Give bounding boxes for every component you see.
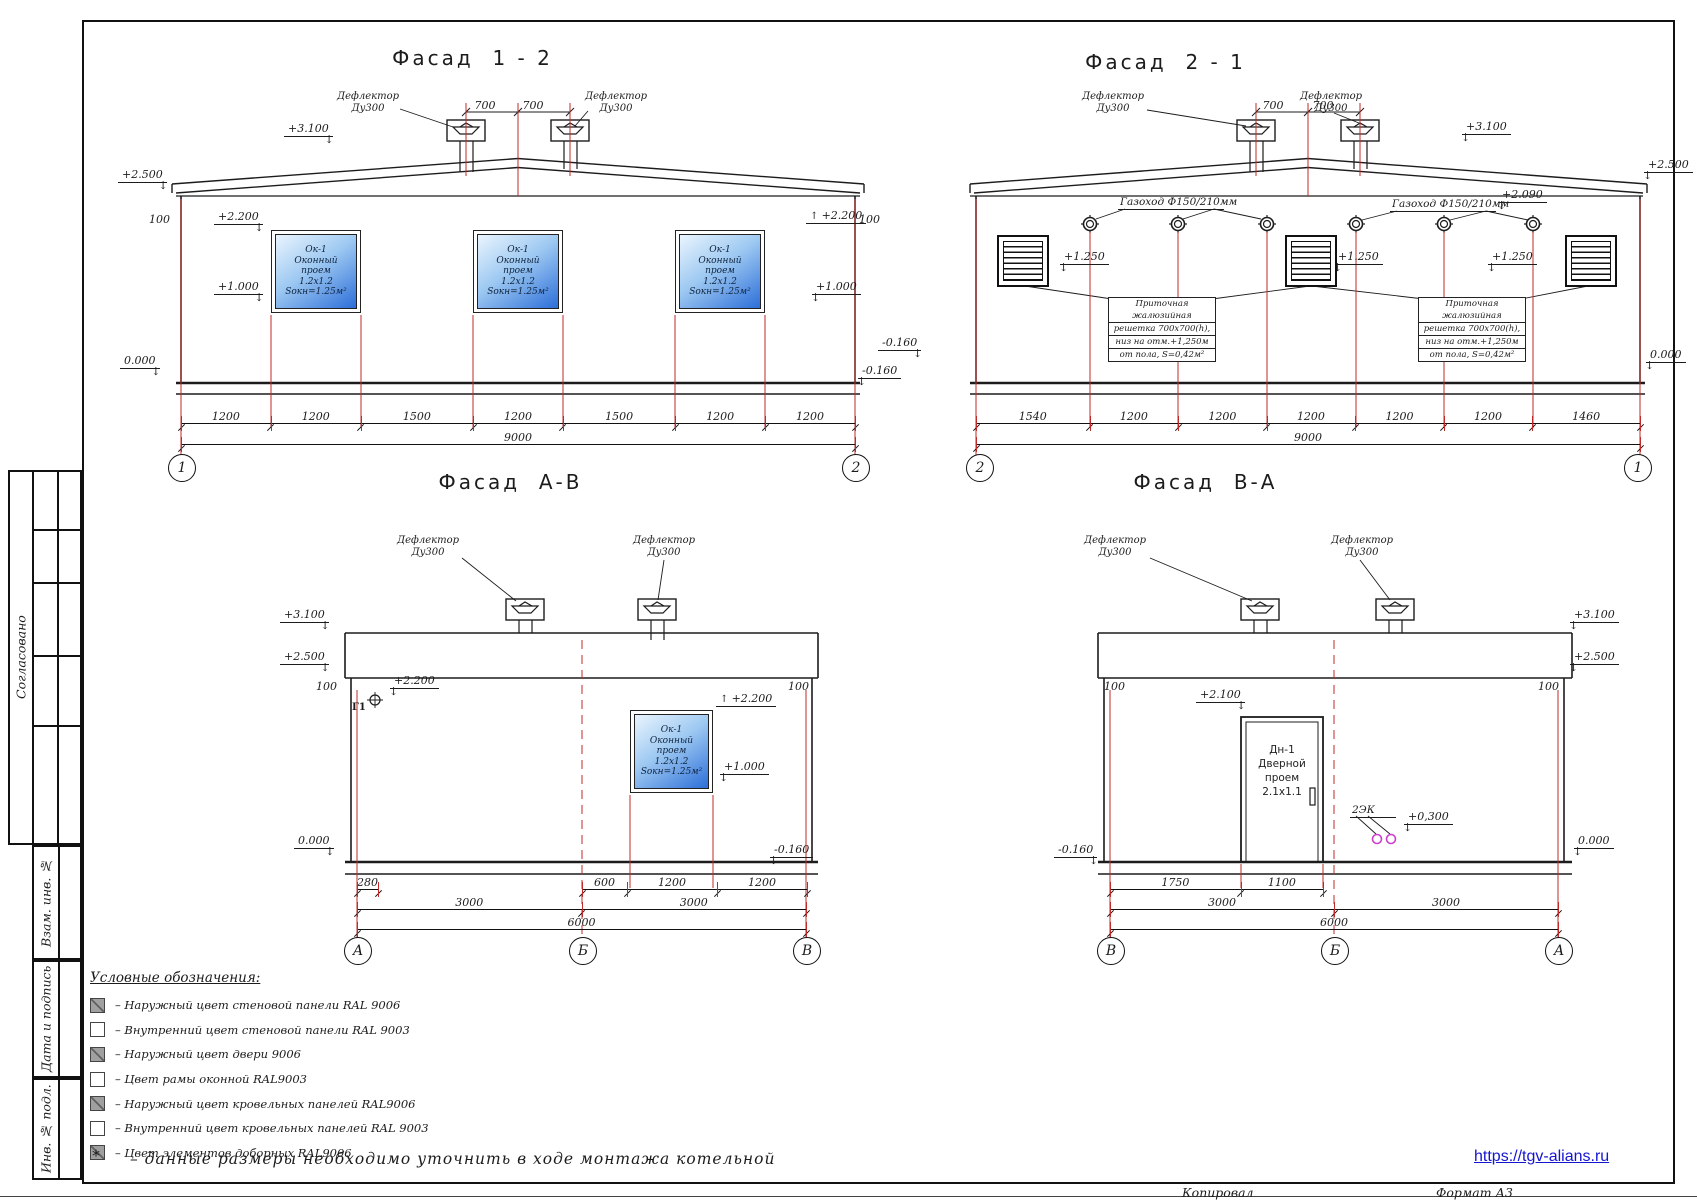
extension-tick xyxy=(806,902,807,917)
legend-label: – Наружный цвет двери 9006 xyxy=(115,1047,301,1061)
dimension-row: 280 xyxy=(357,876,378,890)
elevation-mark: +2.200 xyxy=(214,210,263,225)
door-label: Дверной xyxy=(1258,757,1306,771)
window-label: 1.2х1.2 xyxy=(655,757,689,768)
window-label: 1.2х1.2 xyxy=(299,277,333,288)
dimension-row: 1200120015001200150012001200 xyxy=(181,410,855,424)
extension-tick xyxy=(563,416,564,431)
titleblock-approval-strip: Согласовано xyxy=(8,470,82,845)
elevation-mark: +2.500 xyxy=(1644,158,1693,173)
site-link[interactable]: https://tgv-alians.ru xyxy=(1474,1148,1629,1166)
callout-row: от пола, S=0,42м² xyxy=(1109,348,1215,361)
door-dn1: Дн-1Двернойпроем2.1х1.1 xyxy=(1241,717,1323,862)
extension-tick xyxy=(976,437,977,452)
facade-title-2-1: Фасад 2 - 1 xyxy=(1068,50,1263,74)
extension-tick xyxy=(1090,416,1091,431)
axis-marker: В xyxy=(793,937,821,965)
dimension-label: 3000 xyxy=(1110,896,1334,909)
window-label: Sокн=1.25м² xyxy=(285,287,347,298)
dimension-row: 1540120012001200120012001460 xyxy=(976,410,1640,424)
window-label: Ок-1 xyxy=(709,245,731,256)
elevation-mark: +2.090 xyxy=(1498,188,1547,203)
dimension-row: 30003000 xyxy=(1110,896,1558,910)
legend: Условные обозначения: – Наружный цвет ст… xyxy=(90,970,690,1165)
dimension-row: 6000 xyxy=(1110,916,1558,930)
dimension-line xyxy=(181,423,855,424)
legend-item: – Наружный цвет двери 9006 xyxy=(90,1042,690,1067)
extension-tick xyxy=(271,416,272,431)
deflector-label: Дефлектор Ду300 xyxy=(632,535,696,558)
callout-row: от пола, S=0,42м² xyxy=(1419,348,1525,361)
axis-marker: В xyxy=(1097,937,1125,965)
legend-label: – Наружный цвет кровельных панелей RAL90… xyxy=(115,1097,416,1111)
titleblock-inv-cell: Инв. № подл. xyxy=(32,1078,82,1180)
window-ok1: Ок-1Оконныйпроем1.2х1.2Sокн=1.25м² xyxy=(630,710,713,793)
dimension-label: 6000 xyxy=(1110,916,1558,929)
dimension-label: 1200 xyxy=(473,410,563,423)
extension-tick xyxy=(1558,922,1559,937)
grille-fins xyxy=(1291,241,1331,281)
extension-tick xyxy=(1558,902,1559,917)
titleblock-vzam-label: Взам. инв. № xyxy=(34,847,58,958)
legend-item: – Наружный цвет кровельных панелей RAL90… xyxy=(90,1091,690,1116)
extension-tick xyxy=(1241,882,1242,897)
elevation-mark: -0.160 xyxy=(1054,843,1097,858)
window-label: проем xyxy=(705,266,735,277)
deflector-label: Дефлектор Ду300 xyxy=(1080,91,1146,114)
dimension-label: 1200 xyxy=(1178,410,1267,423)
elevation-mark: +2.200 xyxy=(390,674,439,689)
extension-tick xyxy=(976,416,977,431)
drawing-sheet: Согласовано Взам. инв. № Дата и подпись … xyxy=(0,0,1697,1200)
extension-tick xyxy=(855,437,856,452)
axis-marker: А xyxy=(1545,937,1573,965)
extension-tick xyxy=(855,416,856,431)
elevation-mark: +1.250 xyxy=(1334,250,1383,265)
dimension-label: 1200 xyxy=(675,410,765,423)
elevation-mark: -0.160 xyxy=(770,843,813,858)
elevation-mark: 0.000 xyxy=(120,354,160,369)
gas-duct-label: Газоход Ф150/210мм xyxy=(1390,198,1496,212)
deflector-label: Дефлектор Ду300 xyxy=(584,91,648,114)
callout-row: Приточная жалюзийная xyxy=(1109,298,1215,322)
elevation-mark: +1.250 xyxy=(1060,250,1109,265)
dimension-line xyxy=(357,929,806,930)
window-label: проем xyxy=(657,746,687,757)
elevation-mark: +2.500 xyxy=(118,168,167,183)
dimension-line xyxy=(976,423,1640,424)
dim-700: 700 xyxy=(1308,99,1338,112)
elevation-mark: 0.000 xyxy=(1646,348,1686,363)
extension-tick xyxy=(717,882,718,897)
grille-fins xyxy=(1003,241,1043,281)
deflector-label: Дефлектор Ду300 xyxy=(1083,535,1147,558)
legend-item: – Цвет рамы оконной RAL9003 xyxy=(90,1067,690,1092)
grille-fins xyxy=(1571,241,1611,281)
elevation-mark: +3.100 xyxy=(280,608,329,623)
dimension-label: 1100 xyxy=(1241,876,1323,889)
dim-700: 700 xyxy=(470,99,500,112)
dimension-line xyxy=(1110,929,1558,930)
axis-marker: 2 xyxy=(842,454,870,482)
dimension-row: 9000 xyxy=(181,431,855,445)
extension-tick xyxy=(1267,416,1268,431)
extension-tick xyxy=(627,882,628,897)
deflector-label: Дефлектор Ду300 xyxy=(396,535,460,558)
dimension-label: 3000 xyxy=(582,896,807,909)
dim-100: 100 xyxy=(149,213,170,226)
window-label: Оконный xyxy=(496,256,539,267)
footnote: – данные размеры необходимо уточнить в х… xyxy=(130,1150,775,1168)
dimension-label: 1200 xyxy=(181,410,271,423)
elevation-mark: +3.100 xyxy=(1462,120,1511,135)
dim-100: 100 xyxy=(1538,680,1559,693)
legend-label: – Наружный цвет стеновой панели RAL 9006 xyxy=(115,998,400,1012)
window-glass: Ок-1Оконныйпроем1.2х1.2Sокн=1.25м² xyxy=(679,234,761,309)
legend-swatch-gray xyxy=(90,1096,105,1111)
extension-tick xyxy=(675,416,676,431)
dimension-label: 1200 xyxy=(1090,410,1179,423)
extension-tick xyxy=(1444,416,1445,431)
window-ok1: Ок-1Оконныйпроем1.2х1.2Sокн=1.25м² xyxy=(675,230,765,313)
legend-swatch-white xyxy=(90,1072,105,1087)
extension-tick xyxy=(1323,882,1324,897)
grille-callout: Приточная жалюзийнаярешетка 700х700(h),н… xyxy=(1418,297,1526,362)
titleblock-vzam-cell: Взам. инв. № xyxy=(32,845,82,960)
titleblock-date-label: Дата и подпись xyxy=(34,962,58,1076)
elevation-mark: +1.000 xyxy=(812,280,861,295)
callout-row: решетка 700х700(h), xyxy=(1419,322,1525,335)
extension-tick xyxy=(1640,416,1641,431)
extension-tick xyxy=(1110,882,1111,897)
axis-marker: Б xyxy=(1321,937,1349,965)
window-glass: Ок-1Оконныйпроем1.2х1.2Sокн=1.25м² xyxy=(634,714,709,789)
dimension-label: 1540 xyxy=(976,410,1090,423)
footnote-star: * xyxy=(92,1146,100,1165)
legend-swatch-white xyxy=(90,1121,105,1136)
extension-tick xyxy=(765,416,766,431)
dimension-label: 1200 xyxy=(627,876,717,889)
elevation-mark: 0.000 xyxy=(294,834,334,849)
dim-700: 700 xyxy=(1258,99,1288,112)
extension-tick xyxy=(357,902,358,917)
extension-tick xyxy=(582,902,583,917)
legend-swatch-gray xyxy=(90,1047,105,1062)
facade-title-a-v: Фасад А-В xyxy=(418,470,603,494)
facade-title-v-a: Фасад В-А xyxy=(1113,470,1298,494)
footer-copied: Копировал xyxy=(1182,1185,1254,1200)
extension-tick xyxy=(1110,902,1111,917)
dimension-label: 1200 xyxy=(717,876,807,889)
window-label: Ок-1 xyxy=(305,245,327,256)
intake-grille xyxy=(1285,235,1337,287)
door-label: проем xyxy=(1265,771,1299,785)
dim-700: 700 xyxy=(518,99,548,112)
elevation-mark: -0.160 xyxy=(878,336,921,351)
window-label: Оконный xyxy=(698,256,741,267)
dimension-label: 600 xyxy=(582,876,627,889)
dimension-label: 1200 xyxy=(1267,410,1356,423)
callout-row: Приточная жалюзийная xyxy=(1419,298,1525,322)
extension-tick xyxy=(357,882,358,897)
dim-100: 100 xyxy=(1104,680,1125,693)
deflector-label: Дефлектор Ду300 xyxy=(336,91,400,114)
dimension-label: 1500 xyxy=(361,410,473,423)
window-label: Sокн=1.25м² xyxy=(689,287,751,298)
dimension-row: 9000 xyxy=(976,431,1640,445)
legend-item: – Внутренний цвет кровельных панелей RAL… xyxy=(90,1116,690,1141)
elevation-mark: +3.100 xyxy=(284,122,333,137)
titleblock-date-cell: Дата и подпись xyxy=(32,960,82,1078)
dimension-label: 6000 xyxy=(357,916,806,929)
g1-mark-label: Г1 xyxy=(352,702,366,713)
axis-marker: 1 xyxy=(168,454,196,482)
titleblock-agreed-label: Согласовано xyxy=(10,472,32,843)
window-label: Ок-1 xyxy=(507,245,529,256)
elevation-mark: +2.200 xyxy=(806,209,866,224)
elevation-mark: +2.500 xyxy=(280,650,329,665)
intake-grille xyxy=(997,235,1049,287)
elevation-mark: -0.160 xyxy=(858,364,901,379)
dimension-label: 9000 xyxy=(181,431,855,444)
legend-swatch-white xyxy=(90,1022,105,1037)
intake-grille xyxy=(1565,235,1617,287)
extension-tick xyxy=(1110,922,1111,937)
dimension-line xyxy=(976,444,1640,445)
elevation-mark: +2.200 xyxy=(716,692,776,707)
extension-tick xyxy=(1334,902,1335,917)
dimension-row: 17501100 xyxy=(1110,876,1323,890)
dimension-label: 1500 xyxy=(563,410,675,423)
window-label: 1.2х1.2 xyxy=(703,277,737,288)
legend-label: – Внутренний цвет кровельных панелей RAL… xyxy=(115,1121,429,1135)
dim-100: 100 xyxy=(316,680,337,693)
elevation-mark: +1.000 xyxy=(720,760,769,775)
window-label: Оконный xyxy=(650,736,693,747)
legend-item: – Наружный цвет стеновой панели RAL 9006 xyxy=(90,993,690,1018)
elevation-mark: +2.100 xyxy=(1196,688,1245,703)
legend-label: – Цвет рамы оконной RAL9003 xyxy=(115,1072,307,1086)
dimension-row: 6000 xyxy=(357,916,806,930)
dim-100: 100 xyxy=(859,213,880,226)
dimension-row: 60012001200 xyxy=(582,876,807,890)
door-label: Дн-1 xyxy=(1269,743,1295,757)
extension-tick xyxy=(807,882,808,897)
dimension-line xyxy=(582,889,807,890)
extension-tick xyxy=(1532,416,1533,431)
elevation-mark: +2.500 xyxy=(1570,650,1619,665)
window-label: проем xyxy=(503,266,533,277)
dimension-label: 9000 xyxy=(976,431,1640,444)
gas-duct-label: Газоход Ф150/210мм xyxy=(1118,196,1224,210)
legend-title: Условные обозначения: xyxy=(90,970,690,986)
elevation-mark: +3.100 xyxy=(1570,608,1619,623)
callout-row: решетка 700х700(h), xyxy=(1109,322,1215,335)
extension-tick xyxy=(1178,416,1179,431)
dimension-label: 1200 xyxy=(1355,410,1444,423)
extension-tick xyxy=(361,416,362,431)
window-label: Sокн=1.25м² xyxy=(487,287,549,298)
extension-tick xyxy=(378,882,379,897)
dimension-label: 3000 xyxy=(1334,896,1558,909)
extension-tick xyxy=(1640,437,1641,452)
extension-tick xyxy=(473,416,474,431)
extension-tick xyxy=(582,882,583,897)
dimension-line xyxy=(1110,889,1323,890)
legend-label: – Внутренний цвет стеновой панели RAL 90… xyxy=(115,1023,410,1037)
elevation-mark: +0,300 xyxy=(1404,810,1453,825)
titleblock-inv-label: Инв. № подл. xyxy=(34,1080,58,1178)
window-label: Ок-1 xyxy=(661,725,683,736)
dim-100: 100 xyxy=(788,680,809,693)
ek-label: 2ЭК xyxy=(1350,804,1396,818)
window-ok1: Ок-1Оконныйпроем1.2х1.2Sокн=1.25м² xyxy=(473,230,563,313)
dimension-row: 30003000 xyxy=(357,896,806,910)
dimension-label: 1200 xyxy=(271,410,361,423)
elevation-mark: 0.000 xyxy=(1574,834,1614,849)
dimension-label: 1200 xyxy=(765,410,855,423)
axis-marker: 2 xyxy=(966,454,994,482)
callout-row: низ на отм.+1,250м xyxy=(1419,335,1525,348)
dimension-label: 1750 xyxy=(1110,876,1241,889)
deflector-label: Дефлектор Ду300 xyxy=(1330,535,1394,558)
dimension-line xyxy=(181,444,855,445)
window-label: Sокн=1.25м² xyxy=(641,767,703,778)
extension-tick xyxy=(357,922,358,937)
footer-format: Формат А3 xyxy=(1436,1185,1513,1200)
window-ok1: Ок-1Оконныйпроем1.2х1.2Sокн=1.25м² xyxy=(271,230,361,313)
axis-marker: 1 xyxy=(1624,454,1652,482)
extension-tick xyxy=(181,416,182,431)
door-label: 2.1х1.1 xyxy=(1262,785,1302,799)
legend-item: – Внутренний цвет стеновой панели RAL 90… xyxy=(90,1018,690,1043)
elevation-mark: +1.000 xyxy=(214,280,263,295)
callout-row: низ на отм.+1,250м xyxy=(1109,335,1215,348)
grille-callout: Приточная жалюзийнаярешетка 700х700(h),н… xyxy=(1108,297,1216,362)
dimension-label: 1200 xyxy=(1444,410,1533,423)
axis-marker: Б xyxy=(569,937,597,965)
facade-title-1-2: Фасад 1 - 2 xyxy=(375,46,570,70)
dimension-label: 1460 xyxy=(1532,410,1640,423)
dimension-label: 280 xyxy=(357,876,378,889)
window-glass: Ок-1Оконныйпроем1.2х1.2Sокн=1.25м² xyxy=(275,234,357,309)
window-label: Оконный xyxy=(294,256,337,267)
dimension-label: 3000 xyxy=(357,896,582,909)
extension-tick xyxy=(806,922,807,937)
window-label: проем xyxy=(301,266,331,277)
elevation-mark: +1.250 xyxy=(1488,250,1537,265)
extension-tick xyxy=(181,437,182,452)
window-glass: Ок-1Оконныйпроем1.2х1.2Sокн=1.25м² xyxy=(477,234,559,309)
legend-swatch-gray xyxy=(90,998,105,1013)
extension-tick xyxy=(1355,416,1356,431)
axis-marker: А xyxy=(344,937,372,965)
window-label: 1.2х1.2 xyxy=(501,277,535,288)
